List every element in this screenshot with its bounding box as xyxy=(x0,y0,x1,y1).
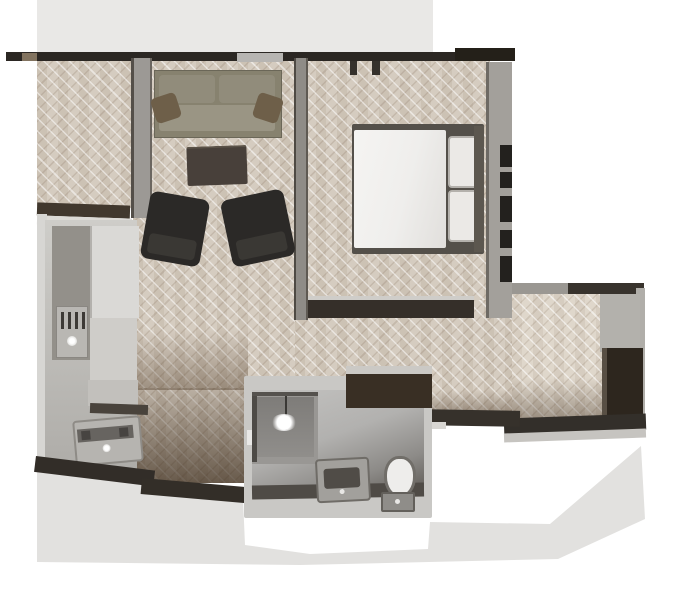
floor-plan-canvas xyxy=(0,0,700,592)
armchair-left-seat xyxy=(147,233,198,261)
hallway-top-wall-light xyxy=(512,283,568,294)
top-wall-window xyxy=(237,53,283,62)
towel-mark xyxy=(247,430,252,445)
armchair-left xyxy=(140,190,211,267)
entry-floor-shadow xyxy=(135,388,245,483)
entry-niche xyxy=(346,374,432,408)
alcove-floor xyxy=(37,58,133,208)
washing-machine-door-light xyxy=(102,444,111,453)
top-wall-highlight-break xyxy=(22,53,37,61)
living-bedroom-wall xyxy=(294,58,308,320)
sofa xyxy=(154,70,282,138)
hall-bottom-wall-notch xyxy=(430,422,446,429)
vanity-bowl xyxy=(323,467,360,489)
vanity-basin xyxy=(315,457,371,504)
armchair-right xyxy=(220,188,297,268)
double-bed xyxy=(352,124,484,254)
window-slat-5 xyxy=(500,256,512,282)
cooktop-slat-3 xyxy=(75,312,78,329)
washing-machine xyxy=(72,415,144,467)
window-slat-4 xyxy=(500,230,512,248)
pendant-light xyxy=(271,414,297,431)
hallway-corner-niche xyxy=(600,294,640,352)
top-exterior-wall xyxy=(6,52,457,61)
kitchen-base-cabinet xyxy=(88,380,138,406)
bedroom-door-stub-left xyxy=(350,61,357,75)
window-slat-3 xyxy=(500,196,512,222)
bed-duvet xyxy=(354,130,446,248)
washing-machine-knob-right xyxy=(119,427,129,437)
kitchen-mid-cabinet xyxy=(90,318,137,380)
bedroom-bottom-wall xyxy=(308,296,474,318)
cooktop xyxy=(56,306,88,358)
coffee-table xyxy=(186,145,247,186)
cooktop-slat-1 xyxy=(61,312,64,329)
cooktop-slat-2 xyxy=(68,312,71,329)
toilet-cistern xyxy=(381,492,415,512)
living-floor-shadow xyxy=(133,330,248,390)
cooktop-knob-light xyxy=(67,336,77,346)
washing-machine-knob-left xyxy=(81,431,91,441)
shower-door-frame xyxy=(252,392,257,462)
toilet-flush-dot xyxy=(395,499,400,504)
bedroom-top-wall-step xyxy=(455,48,515,61)
bedroom-door-stub-right xyxy=(372,61,380,75)
alcove-living-wall xyxy=(131,58,152,218)
bed-headboard xyxy=(474,126,484,252)
window-slat-2 xyxy=(500,172,512,188)
armchair-right-seat xyxy=(235,231,288,261)
vanity-drain-dot xyxy=(339,489,344,494)
backdrop-top-gray xyxy=(37,0,433,56)
kitchen-counter-edge xyxy=(90,403,148,415)
cooktop-slat-4 xyxy=(82,312,85,329)
kitchen-tall-cabinet xyxy=(90,226,139,318)
window-slat-1 xyxy=(500,145,512,167)
